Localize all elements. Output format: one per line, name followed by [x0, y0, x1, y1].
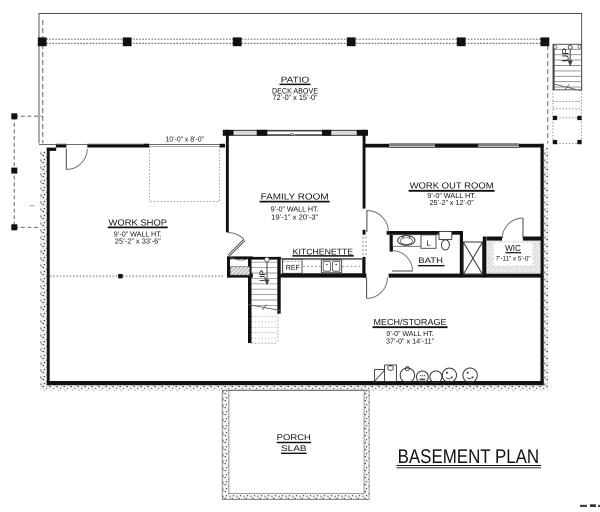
svg-text:FAMILY ROOM: FAMILY ROOM — [261, 191, 329, 201]
svg-text:SLAB: SLAB — [281, 443, 307, 453]
svg-text:25’-2” x 12’-0”: 25’-2” x 12’-0” — [430, 198, 475, 207]
svg-text:BASEMENT PLAN: BASEMENT PLAN — [398, 446, 540, 468]
svg-text:L: L — [426, 238, 430, 247]
svg-text:KITCHENETTE: KITCHENETTE — [293, 246, 354, 256]
svg-text:10’-0” x 8’-0”: 10’-0” x 8’-0” — [165, 135, 204, 144]
svg-text:PATIO: PATIO — [281, 75, 310, 85]
svg-text:BATH: BATH — [418, 256, 443, 265]
svg-text:25’-2” x 33’-6”: 25’-2” x 33’-6” — [115, 236, 162, 245]
svg-text:7’-11” x 5’-0”: 7’-11” x 5’-0” — [496, 255, 531, 262]
svg-text:19’-1” x 20’-3”: 19’-1” x 20’-3” — [271, 212, 319, 221]
svg-text:72’-0” x 15’-0”: 72’-0” x 15’-0” — [273, 93, 318, 102]
svg-text:MECH/STORAGE: MECH/STORAGE — [374, 317, 447, 327]
svg-text:WIC: WIC — [505, 243, 521, 253]
svg-text:WORK OUT ROOM: WORK OUT ROOM — [410, 180, 494, 190]
svg-text:PORCH: PORCH — [277, 432, 311, 442]
svg-text:UP: UP — [561, 48, 571, 62]
svg-text:37’-0” x 14’-11”: 37’-0” x 14’-11” — [386, 336, 435, 345]
svg-text:REF: REF — [286, 263, 300, 272]
svg-text:WORK SHOP: WORK SHOP — [109, 217, 168, 227]
